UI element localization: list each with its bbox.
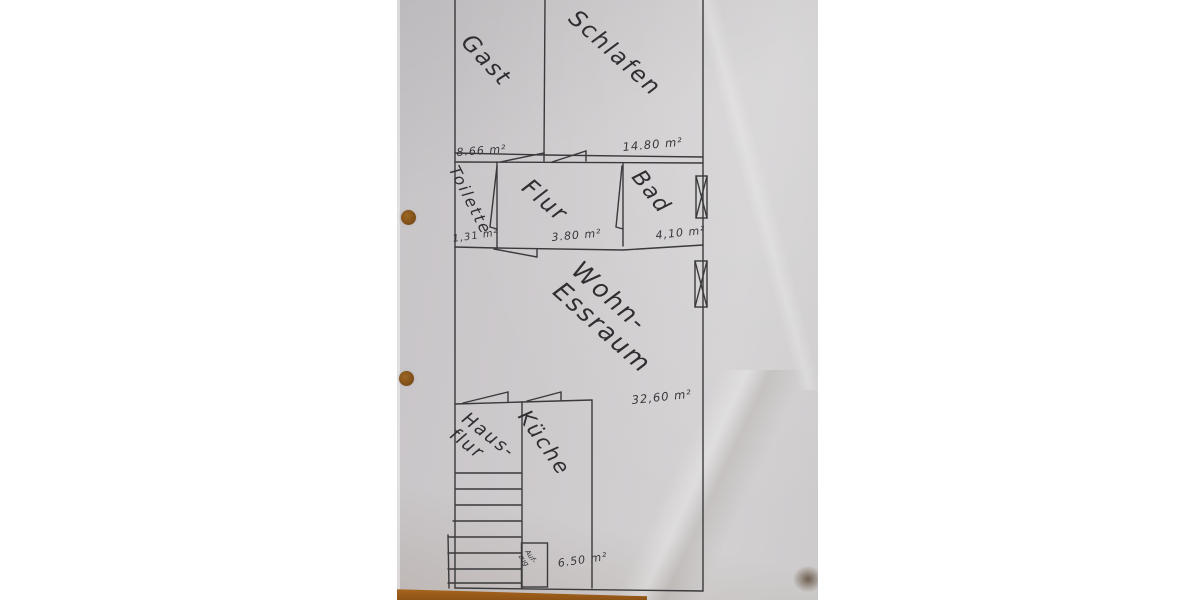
door-schlafen (552, 151, 586, 162)
door-kueche (527, 392, 561, 401)
door-flur-wohn (494, 249, 537, 257)
wall-gast-schlafen-divider (544, 0, 545, 155)
window-wohn-essraum (695, 261, 707, 307)
stairs (448, 473, 521, 588)
photo-of-floor-plan: Gast Schlafen Toilette Flur Bad Wohn- Es… (0, 0, 1200, 600)
wall-corridor-bottom (455, 245, 703, 250)
window-bad (696, 176, 707, 218)
wall-corridor-top (455, 162, 703, 163)
wall-bottom (455, 588, 703, 591)
door-hausflur (463, 392, 508, 403)
door-bad (616, 166, 623, 229)
